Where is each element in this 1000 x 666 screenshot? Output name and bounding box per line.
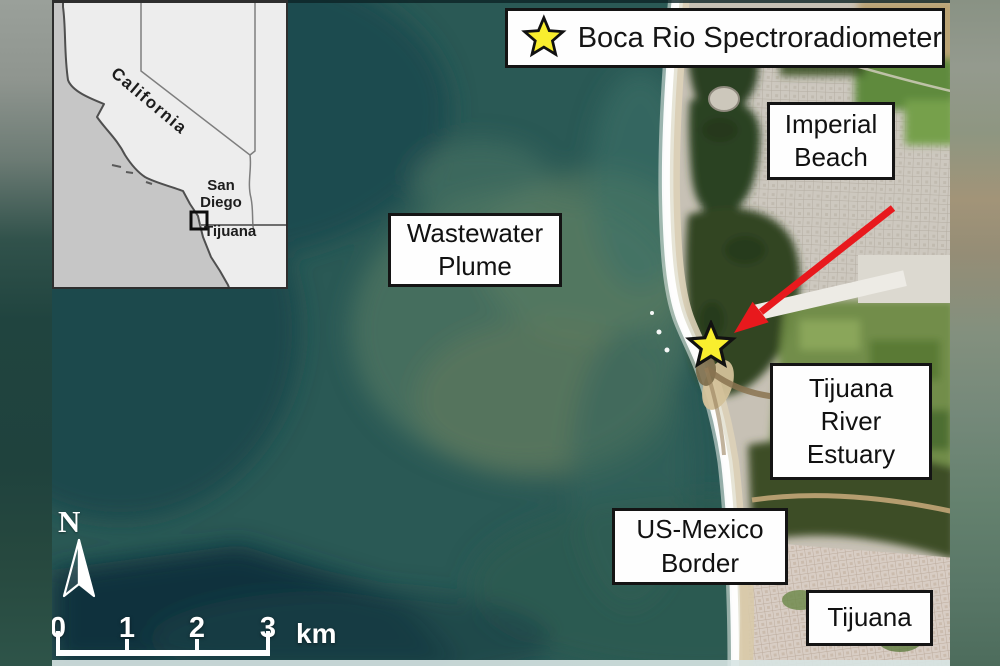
scale-bar — [58, 650, 270, 656]
label-line: Imperial — [785, 108, 877, 141]
inset-city-label-san-diego: San Diego — [196, 177, 246, 211]
label-line: Wastewater — [407, 217, 543, 250]
inset-state-outline — [54, 3, 288, 289]
label-imperial-beach: Imperial Beach — [767, 102, 895, 180]
label-line: US-Mexico — [636, 513, 763, 546]
label-wastewater-plume: Wastewater Plume — [388, 213, 562, 287]
scale-unit-label: km — [296, 618, 336, 650]
label-line: Estuary — [807, 438, 895, 471]
label-us-mexico-border: US-Mexico Border — [612, 508, 788, 585]
label-line: Beach — [794, 141, 868, 174]
pointer-arrow — [725, 195, 905, 345]
label-line: Tijuana — [827, 601, 911, 634]
label-line: River — [821, 405, 882, 438]
label-line: Tijuana — [809, 372, 893, 405]
blur-bar-left — [0, 0, 52, 666]
label-tijuana: Tijuana — [806, 590, 933, 646]
north-arrow-label: N — [58, 504, 80, 540]
legend-label: Boca Rio Spectroradiometer — [578, 22, 942, 55]
scale-tick — [125, 639, 129, 656]
label-tijuana-river-estuary: Tijuana River Estuary — [770, 363, 932, 480]
label-line: Border — [661, 547, 739, 580]
scale-tick — [195, 639, 199, 656]
station-star-icon — [685, 320, 737, 372]
pointer-arrow-shaft — [761, 208, 893, 312]
scale-tick — [266, 631, 270, 656]
north-arrow-icon — [60, 538, 98, 600]
legend-star-icon — [520, 13, 568, 63]
inset-map: California San Diego Tijuana — [52, 0, 288, 289]
scale-tick — [56, 631, 60, 656]
label-line: Plume — [438, 250, 512, 283]
legend: Boca Rio Spectroradiometer — [505, 8, 945, 68]
oval-facility — [709, 87, 739, 111]
figure-canvas: Boca Rio Spectroradiometer California Sa… — [0, 0, 1000, 666]
inset-city-label-tijuana: Tijuana — [204, 223, 274, 240]
blur-bar-right — [950, 0, 1000, 666]
bottom-edge-strip — [52, 660, 950, 666]
